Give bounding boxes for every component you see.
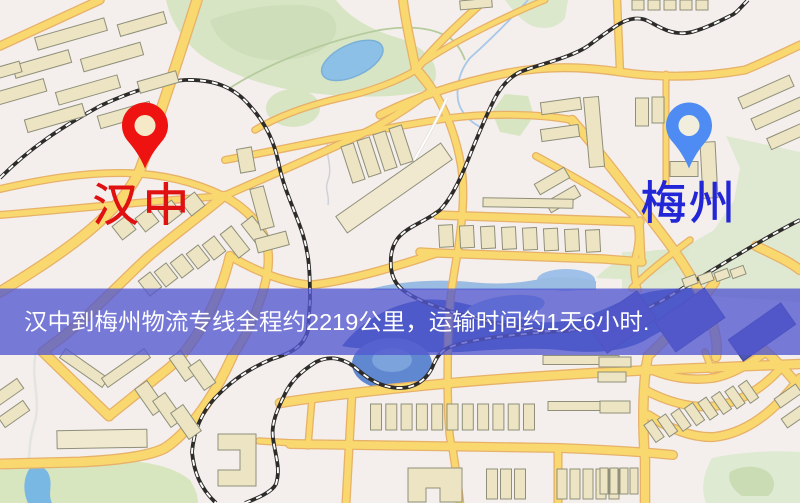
svg-text:1: 1	[546, 309, 559, 335]
svg-text:6: 6	[583, 309, 596, 335]
svg-text:.: .	[643, 309, 650, 335]
svg-text:2219: 2219	[306, 309, 358, 335]
